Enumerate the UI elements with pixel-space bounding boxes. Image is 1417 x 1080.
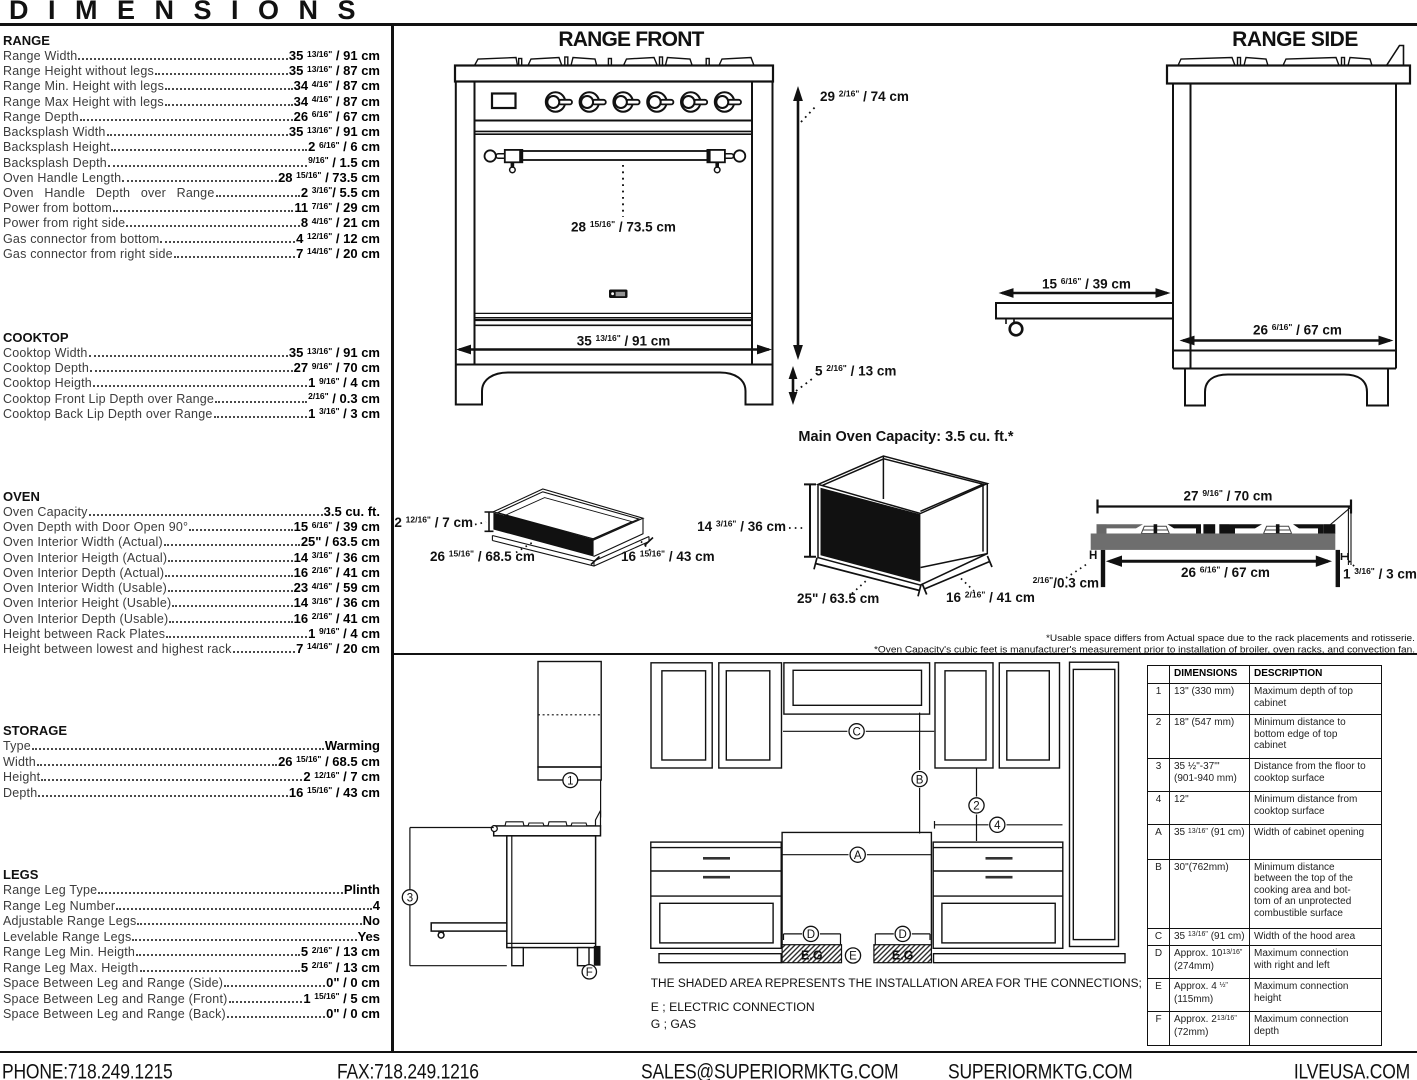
svg-text:1 3/16" / 3 cm: 1 3/16" / 3 cm <box>1343 566 1417 582</box>
svg-text:28 15/16" / 73.5 cm: 28 15/16" / 73.5 cm <box>571 219 676 235</box>
svg-text:A: A <box>854 850 862 862</box>
svg-text:E: E <box>849 951 857 963</box>
svg-text:2 12/16" / 7 cm: 2 12/16" / 7 cm <box>394 515 473 531</box>
svg-text:E ; ELECTRIC CONNECTION: E ; ELECTRIC CONNECTION <box>651 1000 815 1014</box>
svg-text:Main Oven Capacity: 3.5 cu. ft: Main Oven Capacity: 3.5 cu. ft.* <box>798 429 1013 445</box>
svg-text:F: F <box>586 967 593 979</box>
svg-text:*Oven Capacity's cubic feet is: *Oven Capacity's cubic feet is manufactu… <box>874 645 1415 656</box>
svg-text:35 13/16" / 91 cm: 35 13/16" / 91 cm <box>577 333 671 349</box>
svg-text:4: 4 <box>994 820 1001 832</box>
svg-text:D: D <box>899 929 907 941</box>
svg-text:D: D <box>807 929 815 941</box>
svg-text:RANGE FRONT: RANGE FRONT <box>558 28 704 51</box>
svg-text:THE SHADED AREA REPRESENTS THE: THE SHADED AREA REPRESENTS THE INSTALLAT… <box>651 976 1142 990</box>
svg-text:G ; GAS: G ; GAS <box>651 1017 696 1031</box>
svg-text:26 6/16" / 67 cm: 26 6/16" / 67 cm <box>1253 322 1342 338</box>
svg-text:H: H <box>1089 550 1097 562</box>
svg-text:2/16"/0.3 cm: 2/16"/0.3 cm <box>1033 575 1099 591</box>
svg-text:16 15/16" / 43 cm: 16 15/16" / 43 cm <box>621 549 715 565</box>
svg-text:25" / 63.5 cm: 25" / 63.5 cm <box>797 591 879 606</box>
svg-text:26 15/16" / 68.5 cm: 26 15/16" / 68.5 cm <box>430 549 535 565</box>
svg-text:E.G: E.G <box>892 948 914 962</box>
svg-text:E.G: E.G <box>801 948 823 962</box>
svg-text:16 2/16" / 41 cm: 16 2/16" / 41 cm <box>946 589 1035 605</box>
svg-text:*Usable space differs from Act: *Usable space differs from Actual space … <box>1046 633 1415 644</box>
svg-text:15 6/16" / 39 cm: 15 6/16" / 39 cm <box>1042 276 1131 292</box>
svg-text:5 2/16" / 13 cm: 5 2/16" / 13 cm <box>815 363 896 379</box>
svg-text:3: 3 <box>407 893 413 905</box>
svg-text:29 2/16" / 74 cm: 29 2/16" / 74 cm <box>820 89 909 105</box>
svg-text:B: B <box>916 774 924 786</box>
svg-text:27 9/16" / 70 cm: 27 9/16" / 70 cm <box>1184 488 1273 504</box>
svg-text:1: 1 <box>567 775 573 787</box>
svg-text:14 3/16" / 36 cm: 14 3/16" / 36 cm <box>697 519 786 535</box>
svg-text:C: C <box>852 727 860 739</box>
svg-text:2: 2 <box>973 801 979 813</box>
svg-text:26 6/16" / 67 cm: 26 6/16" / 67 cm <box>1181 565 1270 581</box>
svg-text:RANGE SIDE: RANGE SIDE <box>1232 28 1358 51</box>
